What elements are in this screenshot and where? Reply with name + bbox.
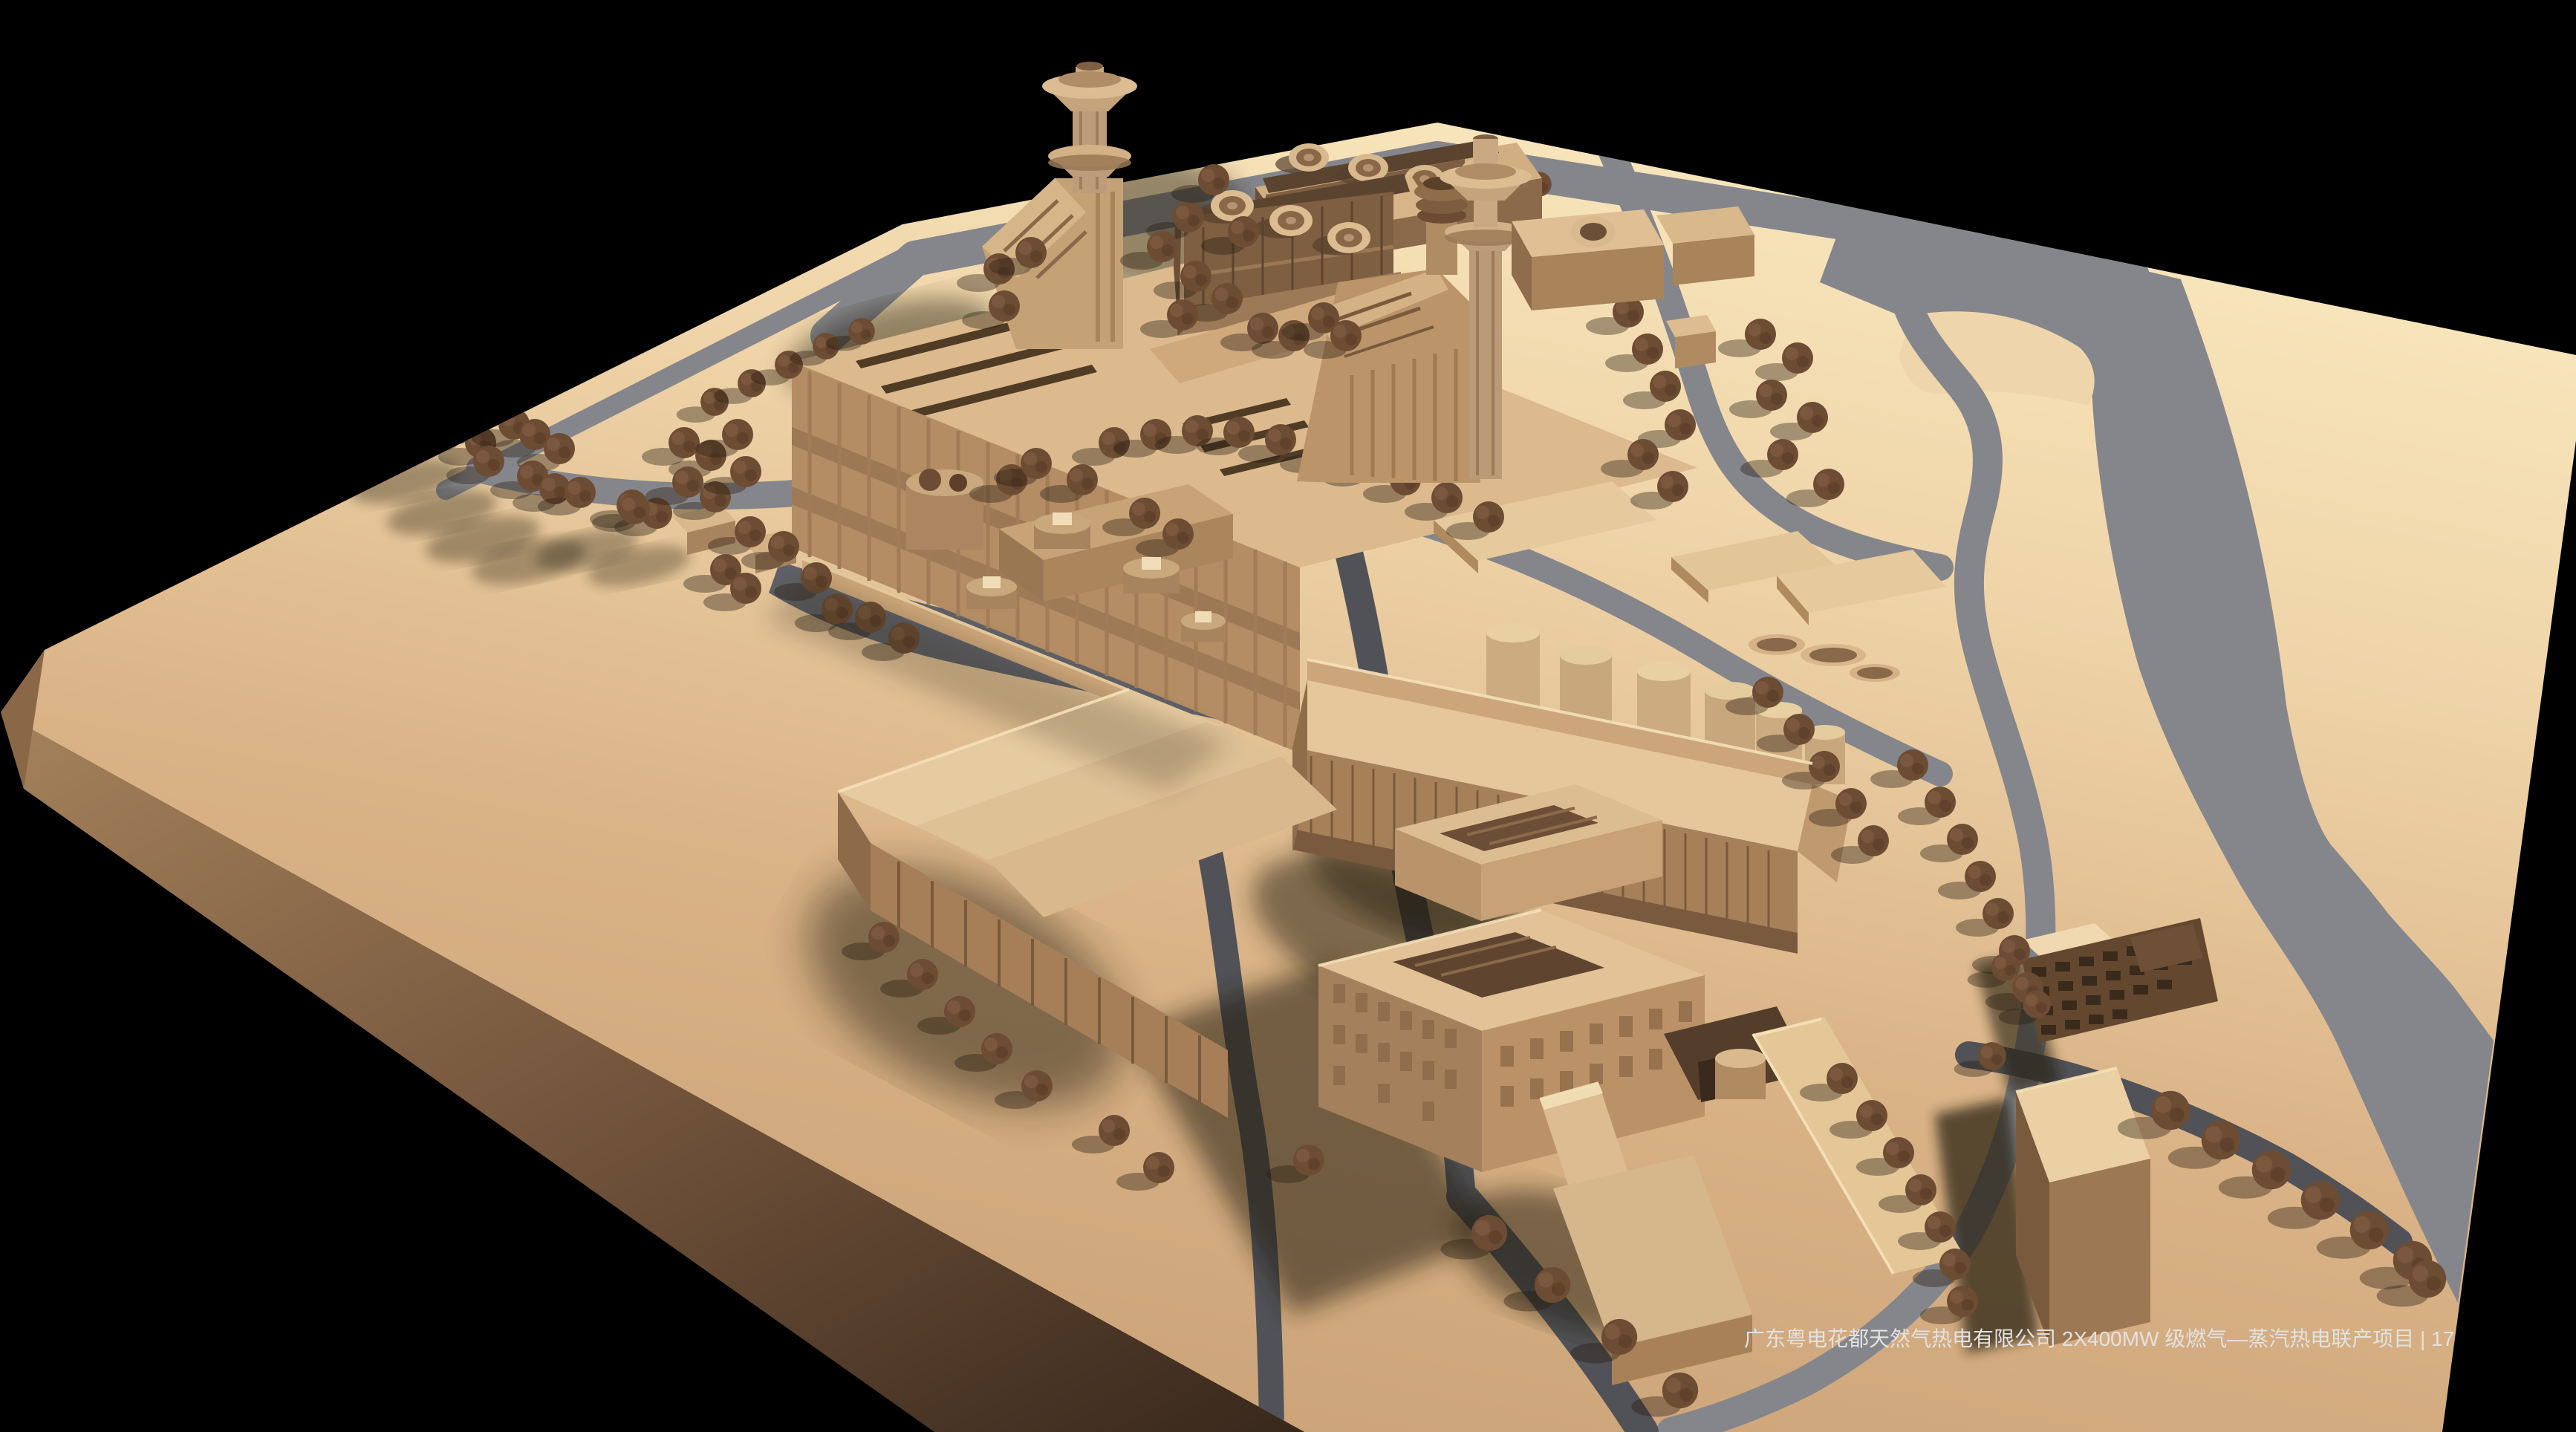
- svg-text:广东粤电花都天然气热电有限公司 2X400MW 级燃气—蒸汽: 广东粤电花都天然气热电有限公司 2X400MW 级燃气—蒸汽热电联产项目 | 1…: [1744, 1327, 2454, 1350]
